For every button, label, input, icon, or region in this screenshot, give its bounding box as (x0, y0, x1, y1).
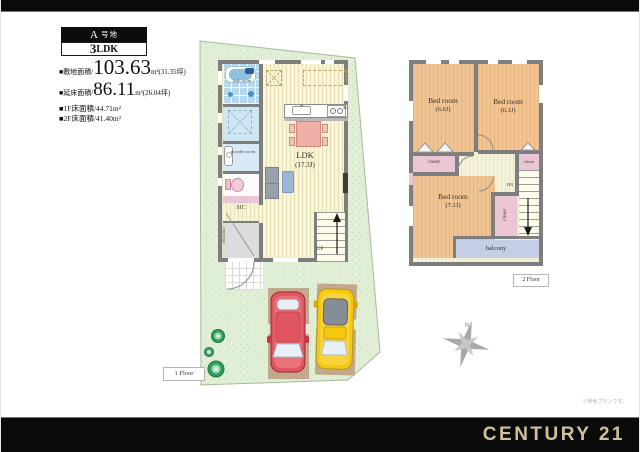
closet-vertical-label: closet (503, 195, 509, 235)
bedroom-71-label: Bed room (7.1J) (425, 193, 481, 209)
stove-burners (331, 107, 347, 114)
balcony-label: balcony (461, 245, 531, 252)
fridge-x-mark (267, 71, 281, 85)
plot-letter: A (90, 29, 99, 41)
site-area-value: 103.63 (93, 57, 151, 78)
dn-label: DN (503, 182, 517, 187)
floor2-area-line: ■2F床面積/41.40m² (59, 113, 121, 124)
compass-north-label: N (465, 322, 470, 329)
bedroom-name: Bed room (480, 98, 536, 107)
sic-label: SIC (229, 205, 253, 212)
total-area-value: 86.11 (93, 80, 135, 99)
down-arrow (524, 198, 532, 236)
floor2-tag: 2 Floor (513, 274, 549, 287)
bedroom-size: (6.6J) (415, 106, 471, 113)
layout-type-box: 3 LDK (61, 42, 147, 56)
powder-room-label: powder room (228, 149, 258, 154)
entrance-label: entrance (222, 215, 228, 255)
bedroom-size: (7.1J) (425, 202, 481, 209)
total-area-line: ■延床面積/ 86.11 m²(26.04坪) (59, 80, 170, 99)
closet-right-label: closet (519, 159, 539, 164)
floor1-tag: 1 Floor (163, 367, 205, 381)
bath-room-label: bath room (228, 78, 256, 83)
washer-x-mark (229, 111, 251, 133)
site-area-label: ■敷地面積/ (59, 67, 93, 77)
closet-fold-marks (417, 143, 535, 152)
bedroom-name: Bed room (425, 193, 481, 202)
bedroom-size: (6.1J) (480, 107, 536, 114)
disclaimer-note: ※参考プランです。 (582, 398, 627, 405)
ldk-name: LDK (282, 151, 328, 161)
plot-label-box: A 号地 (61, 27, 147, 42)
floorplan-flyer: A 号地 3 LDK ■敷地面積/ 103.63 m²(31.35坪) ■延床面… (0, 0, 640, 452)
century21-logo: CENTURY 21 (483, 424, 625, 446)
up-label: UP (313, 247, 327, 253)
compass-icon: N (437, 315, 495, 373)
ldk-label: LDK (17.3J) (282, 151, 328, 169)
plot-suffix: 号地 (101, 29, 118, 40)
entrance-divider (226, 213, 254, 256)
site-area-line: ■敷地面積/ 103.63 m²(31.35坪) (59, 57, 186, 78)
site-area-suffix: m²(31.35坪) (151, 67, 186, 77)
door-arcs (227, 135, 493, 289)
ldk-size: (17.3J) (282, 161, 328, 169)
up-arrow (333, 213, 341, 254)
total-area-label: ■延床面積/ (59, 88, 93, 98)
top-brand-bar (1, 0, 640, 12)
total-area-suffix: m²(26.04坪) (135, 88, 170, 98)
ldk-letters: LDK (96, 44, 118, 55)
bedroom-name: Bed room (415, 97, 471, 106)
bedroom-61-label: Bed room (6.1J) (480, 98, 536, 114)
bedroom-66-label: Bed room (6.6J) (415, 97, 471, 113)
closet-left-label: closet (413, 160, 455, 166)
